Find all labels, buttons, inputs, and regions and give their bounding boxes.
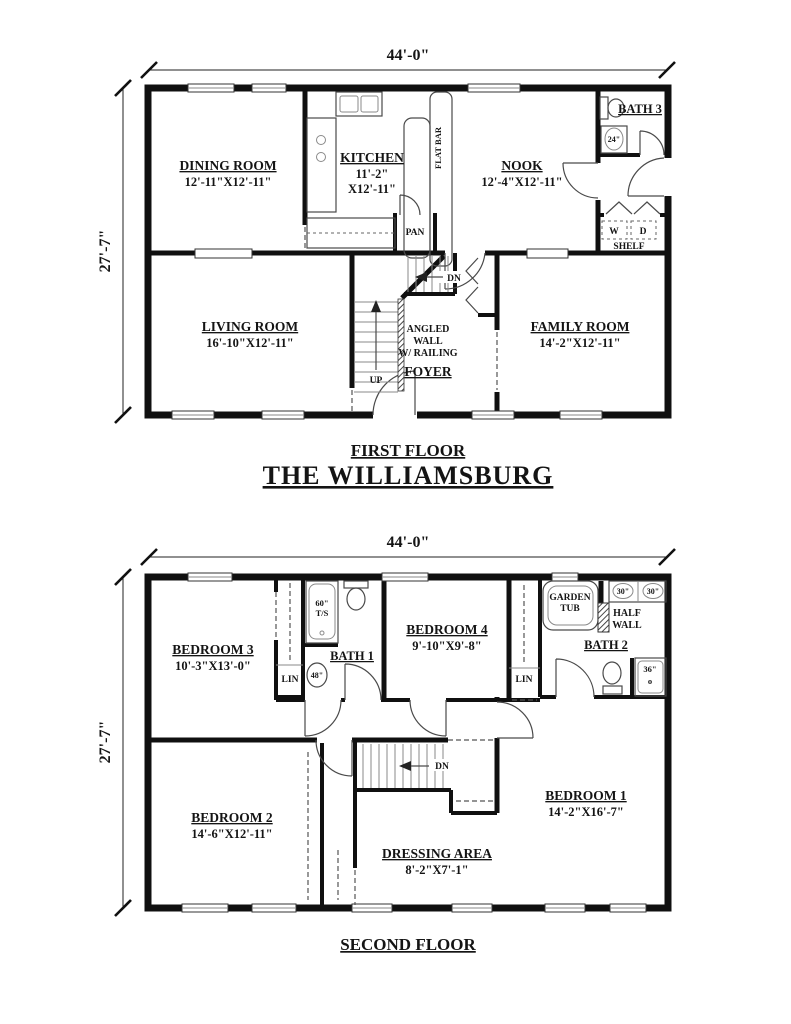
room-nook: NOOK xyxy=(501,158,543,173)
label-vanity24: 24" xyxy=(608,135,620,144)
room-bath1: BATH 1 xyxy=(330,649,374,663)
bath1-door xyxy=(345,664,381,700)
dim-width-floor2: 44'-0" xyxy=(387,534,430,551)
room-dressing-size: 8'-2"X7'-1" xyxy=(405,863,468,877)
floor-plan-drawing: 44'-0" 27'-7" xyxy=(0,0,791,1024)
room-family: FAMILY ROOM xyxy=(531,319,630,334)
plan-title: THE WILLIAMSBURG xyxy=(263,461,554,490)
caption-second-floor: SECOND FLOOR xyxy=(340,935,476,954)
dim-width-floor1: 44'-0" xyxy=(387,47,430,64)
toilet xyxy=(347,588,365,610)
hall-door xyxy=(563,163,598,198)
room-bath2: BATH 2 xyxy=(584,638,628,652)
stair-railing xyxy=(398,299,404,391)
room-bedroom1-size: 14'-2"X16'-7" xyxy=(548,805,624,819)
down-arrow xyxy=(399,761,411,771)
label-shower36: 36" xyxy=(643,664,656,674)
room-dining: DINING ROOM xyxy=(179,158,276,173)
label-linen-right: LIN xyxy=(516,675,533,685)
toilet-base xyxy=(603,686,622,694)
label-tub: TUB xyxy=(560,604,580,614)
half-wall xyxy=(598,603,609,632)
label-linen-left: LIN xyxy=(282,675,299,685)
toilet-tank xyxy=(344,581,368,588)
label-tub-ts: T/S xyxy=(316,608,329,618)
room-dining-size: 12'-11"X12'-11" xyxy=(185,175,272,189)
labels-floor1: DINING ROOM 12'-11"X12'-11" KITCHEN 11'-… xyxy=(179,102,662,386)
room-bedroom4-size: 9'-10"X9'-8" xyxy=(412,639,481,653)
bedroom3-door xyxy=(305,700,341,736)
label-angled-1: ANGLED xyxy=(407,324,450,335)
second-floor-plan: 44'-0" 27'-7" xyxy=(97,534,675,954)
dimension-lines-floor1: 44'-0" 27'-7" xyxy=(97,47,675,423)
side-door xyxy=(628,158,664,196)
pantry-door xyxy=(400,195,420,215)
room-bedroom1: BEDROOM 1 xyxy=(545,788,627,803)
first-floor-plan: 44'-0" 27'-7" xyxy=(97,47,675,490)
room-bedroom3: BEDROOM 3 xyxy=(172,642,254,657)
bath3-fixtures xyxy=(600,97,656,239)
kitchen-counter-left xyxy=(307,118,336,212)
label-sink30-left: 30" xyxy=(617,587,629,596)
room-bedroom2: BEDROOM 2 xyxy=(191,810,273,825)
caption-first-floor: FIRST FLOOR xyxy=(351,441,466,460)
label-up: UP xyxy=(370,376,383,386)
room-living: LIVING ROOM xyxy=(202,319,299,334)
front-door-opening xyxy=(373,410,417,420)
room-living-size: 16'-10"X12'-11" xyxy=(206,336,294,350)
room-bedroom2-size: 14'-6"X12'-11" xyxy=(191,827,272,841)
cased-opening xyxy=(527,249,568,258)
label-dn-floor2: DN xyxy=(435,762,449,772)
label-half: HALF xyxy=(613,608,641,619)
label-shower-drain: o xyxy=(648,676,652,686)
label-sink30-right: 30" xyxy=(647,587,659,596)
label-dn-floor1: DN xyxy=(447,274,461,284)
label-dryer: D xyxy=(640,227,647,237)
label-shelf: SHELF xyxy=(613,242,644,252)
bedroom4-door xyxy=(410,700,446,736)
floor-plan-sheet: 44'-0" 27'-7" xyxy=(0,0,791,1024)
toilet-tank xyxy=(600,97,608,119)
label-vanity48: 48" xyxy=(311,671,323,680)
closet-bifold-doors xyxy=(466,258,478,313)
cased-opening xyxy=(195,249,252,258)
room-bath3: BATH 3 xyxy=(618,102,662,116)
range-burner xyxy=(317,136,326,145)
bath2-door xyxy=(556,659,594,697)
label-garden: GARDEN xyxy=(549,593,590,603)
label-wall: WALL xyxy=(612,620,642,631)
label-tub-60: 60" xyxy=(315,598,328,608)
dim-height-floor1: 27'-7" xyxy=(97,230,114,273)
label-angled-2: WALL xyxy=(413,336,443,347)
side-door-opening xyxy=(663,158,673,196)
room-foyer: FOYER xyxy=(404,364,452,379)
room-bedroom4: BEDROOM 4 xyxy=(406,622,488,637)
room-kitchen: KITCHEN xyxy=(340,150,404,165)
room-dressing: DRESSING AREA xyxy=(382,846,492,861)
bedroom1-door xyxy=(497,702,533,738)
toilet xyxy=(603,662,621,684)
room-kitchen-size2: X12'-11" xyxy=(348,182,396,196)
laundry-bifold-doors xyxy=(606,202,660,214)
dim-height-floor2: 27'-7" xyxy=(97,721,114,764)
label-flat-bar: FLAT BAR xyxy=(433,126,443,169)
room-nook-size: 12'-4"X12'-11" xyxy=(481,175,562,189)
range-burner xyxy=(317,153,326,162)
room-bedroom3-size: 10'-3"X13'-0" xyxy=(175,659,251,673)
room-family-size: 14'-2"X12'-11" xyxy=(539,336,620,350)
label-angled-3: W/ RAILING xyxy=(398,348,457,359)
label-washer: W xyxy=(609,227,619,237)
room-kitchen-size1: 11'-2" xyxy=(356,167,389,181)
bath3-door xyxy=(640,131,664,155)
label-pantry: PAN xyxy=(406,228,425,238)
